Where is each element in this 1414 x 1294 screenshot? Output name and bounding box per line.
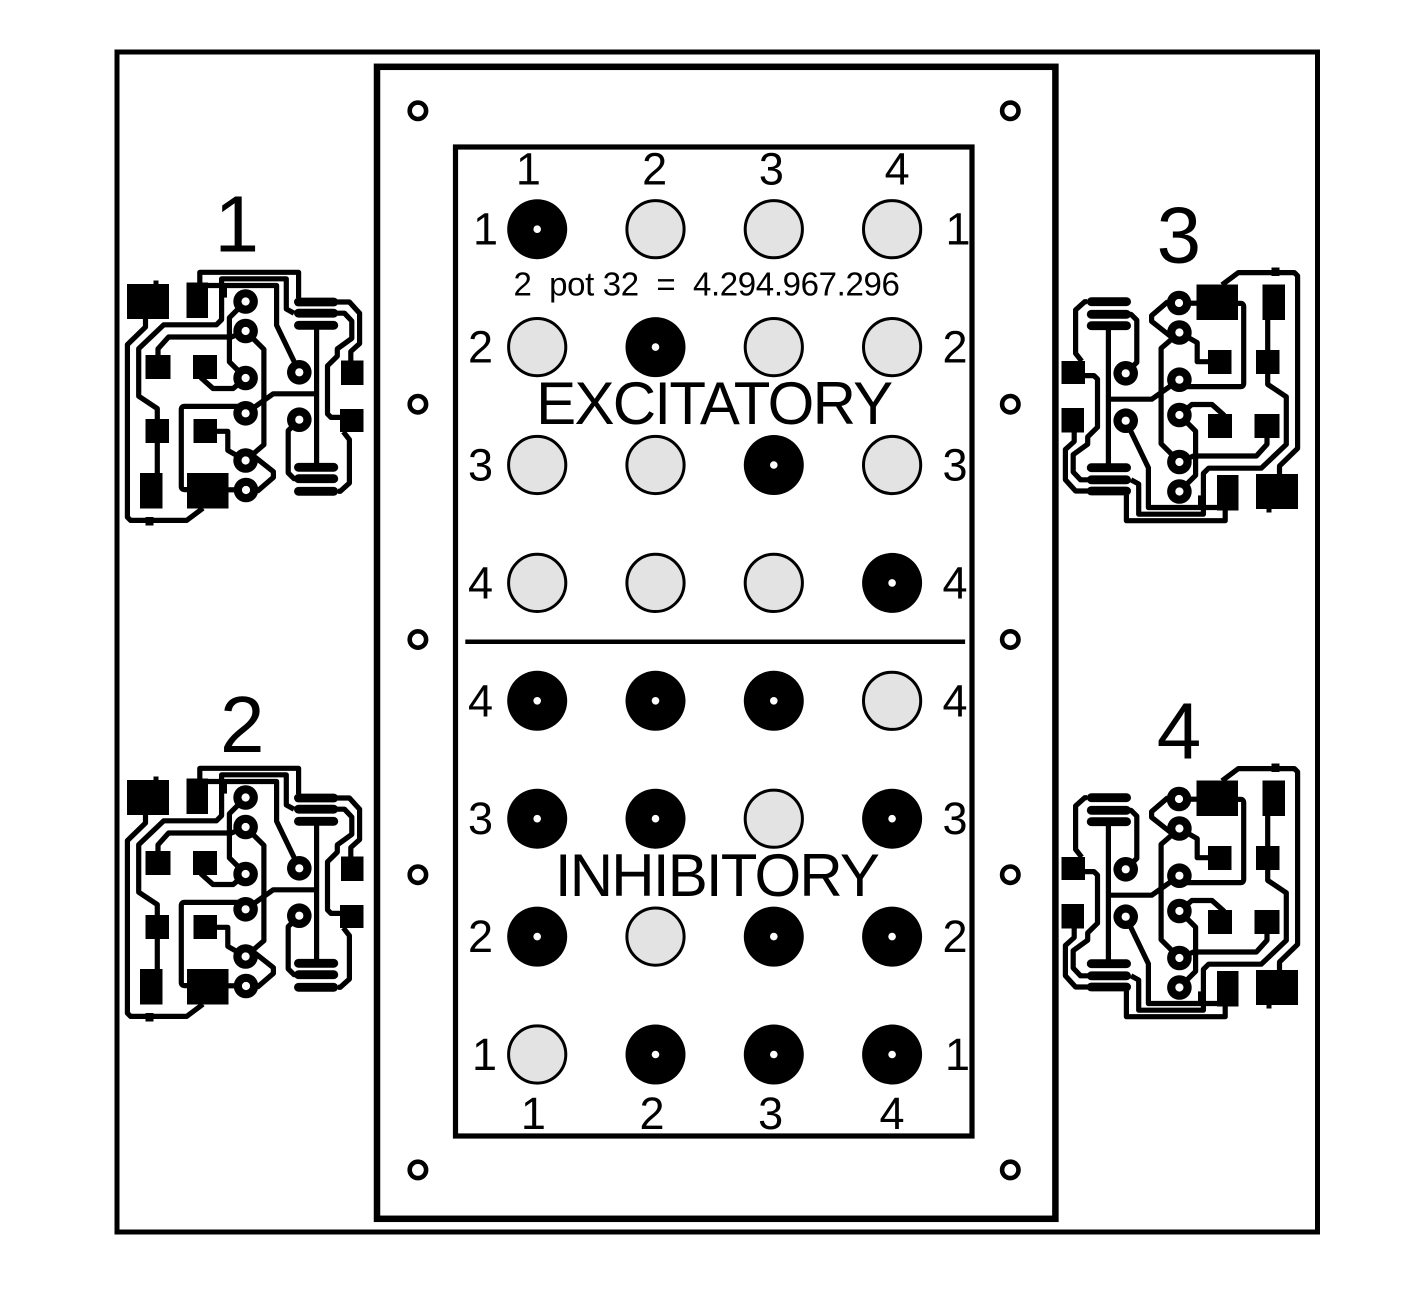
svg-text:3: 3 (1157, 191, 1202, 280)
svg-text:3: 3 (758, 1088, 783, 1139)
svg-text:2: 2 (942, 322, 967, 373)
svg-text:4: 4 (468, 557, 493, 608)
svg-text:4: 4 (879, 1088, 904, 1139)
svg-text:3: 3 (759, 143, 784, 194)
svg-text:2: 2 (468, 322, 493, 373)
svg-text:2: 2 (642, 143, 667, 194)
svg-text:3: 3 (942, 440, 967, 491)
svg-text:INHIBITORY: INHIBITORY (555, 842, 879, 909)
svg-text:1: 1 (516, 143, 541, 194)
svg-text:4: 4 (1157, 687, 1202, 776)
svg-text:1: 1 (473, 204, 498, 255)
svg-text:2 pot 32 = 4.294.967.296: 2 pot 32 = 4.294.967.296 (514, 266, 900, 303)
svg-text:EXCITATORY: EXCITATORY (536, 370, 892, 437)
svg-text:4: 4 (942, 557, 967, 608)
svg-text:4: 4 (468, 675, 493, 726)
svg-text:4: 4 (942, 675, 967, 726)
svg-text:1: 1 (472, 1029, 497, 1080)
svg-text:3: 3 (468, 440, 493, 491)
svg-text:2: 2 (639, 1088, 664, 1139)
svg-text:1: 1 (521, 1088, 546, 1139)
svg-text:4: 4 (885, 143, 910, 194)
svg-text:1: 1 (945, 204, 970, 255)
svg-text:1: 1 (215, 180, 260, 269)
svg-text:3: 3 (468, 793, 493, 844)
svg-text:2: 2 (220, 680, 265, 769)
svg-text:3: 3 (942, 793, 967, 844)
svg-text:2: 2 (942, 911, 967, 962)
svg-text:2: 2 (468, 911, 493, 962)
svg-text:1: 1 (945, 1029, 970, 1080)
